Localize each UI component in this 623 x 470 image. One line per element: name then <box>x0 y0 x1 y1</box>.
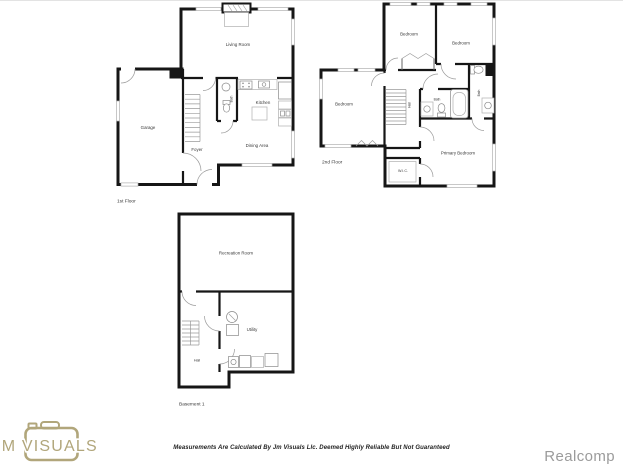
floor-label-second: 2nd Floor <box>322 160 343 166</box>
basement-floor-plan: Recreation Room Utility Hall Basement 1 <box>160 206 320 418</box>
floor-label-basement: Basement 1 <box>179 402 205 408</box>
sink <box>222 83 230 91</box>
room-label-bath-first: Bath <box>230 95 234 102</box>
toilet <box>474 66 483 73</box>
realcomp-watermark: Realcomp <box>544 448 615 465</box>
room-label-living-room: Living Room <box>226 42 251 47</box>
kitchen-island <box>252 107 267 120</box>
chimney-block <box>486 64 495 76</box>
room-label-hall-basement: Hall <box>194 359 201 363</box>
first-floor-walls <box>118 9 293 187</box>
room-label-hall-second: Hall <box>408 102 412 108</box>
floor-label-first: 1st Floor <box>117 199 136 205</box>
room-label-foyer: Foyer <box>191 147 203 152</box>
stove <box>240 81 252 89</box>
room-label-primary-bedroom: Primary Bedroom <box>441 151 476 156</box>
washer <box>240 356 251 368</box>
camera-viewfinder <box>41 422 59 429</box>
room-label-utility: Utility <box>247 327 259 332</box>
sink <box>485 102 492 109</box>
toilet <box>223 104 229 112</box>
toilet-tank <box>438 113 446 117</box>
first-floor-plan: Living Room Garage Kitchen Dining Area F… <box>110 1 310 213</box>
room-label-bath-main: Bath <box>434 98 441 102</box>
room-label-bedroom-top-right: Bedroom <box>452 41 470 46</box>
room-label-kitchen: Kitchen <box>256 100 271 105</box>
jm-visuals-logo: JM VISUALS <box>0 414 108 468</box>
camera-shutter-button <box>29 424 37 429</box>
second-floor-plan: Bedroom Bedroom Bedroom Hall Bath Bath P… <box>310 1 510 201</box>
camera-logo-icon: JM VISUALS <box>0 414 108 468</box>
counter <box>252 357 264 368</box>
refrigerator <box>279 82 292 99</box>
dryer <box>265 354 278 367</box>
room-label-bath-ensuite: Bath <box>477 89 481 96</box>
wall-corner-block <box>170 68 184 79</box>
room-label-bedroom-top-left: Bedroom <box>400 32 418 37</box>
furnace <box>227 325 239 336</box>
room-label-bedroom-left: Bedroom <box>335 102 353 107</box>
room-label-garage: Garage <box>141 125 156 130</box>
room-label-recreation-room: Recreation Room <box>219 251 254 256</box>
room-label-dining-area: Dining Area <box>246 143 269 148</box>
floorplan-page: Living Room Garage Kitchen Dining Area F… <box>0 0 623 470</box>
disclaimer-text: Measurements Are Calculated By Jm Visual… <box>0 445 623 451</box>
toilet <box>438 104 445 113</box>
fireplace <box>223 4 251 27</box>
room-label-wic: W.I.C. <box>398 169 408 173</box>
sink <box>424 106 430 112</box>
